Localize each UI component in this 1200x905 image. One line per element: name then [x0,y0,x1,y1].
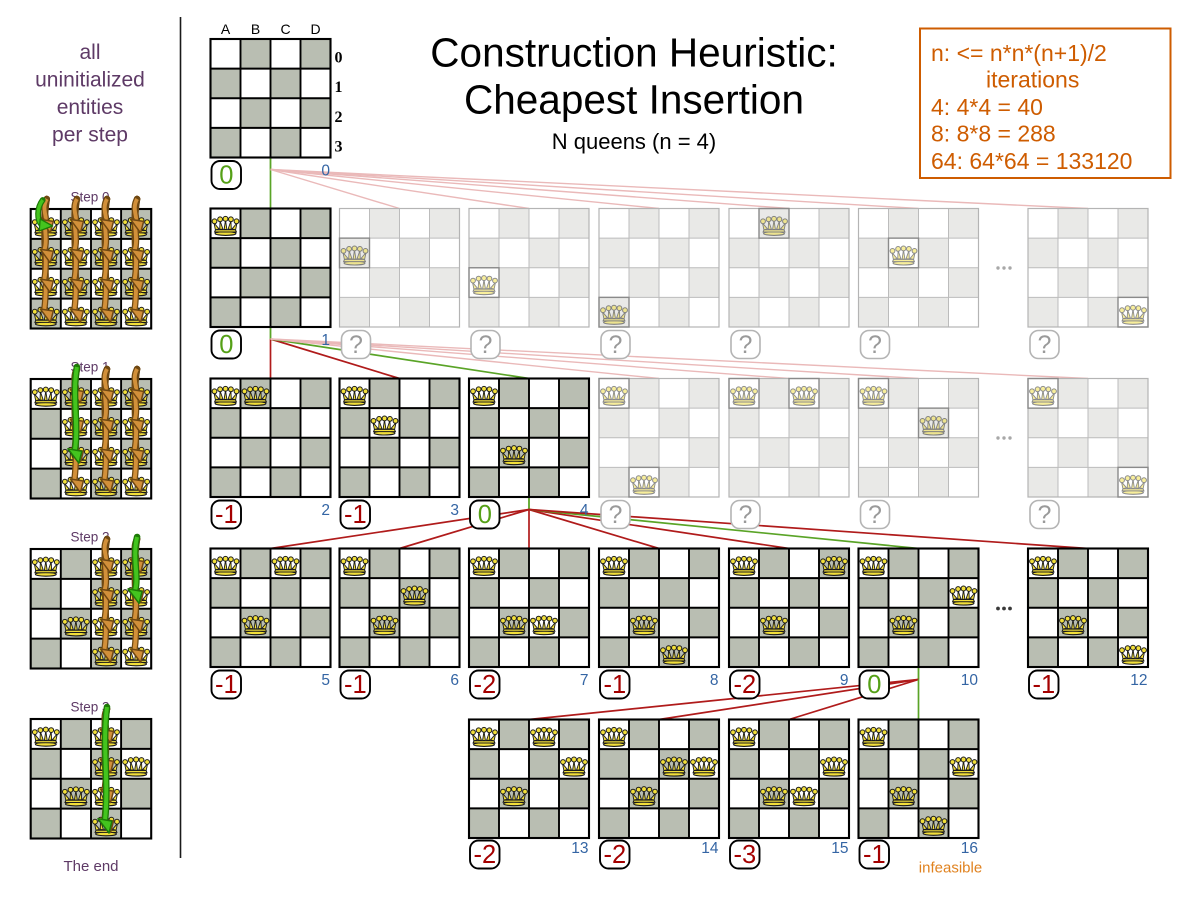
svg-text:4: 4 [580,502,589,519]
svg-text:?: ? [1038,331,1052,359]
svg-text:8: 8 [710,672,719,689]
svg-text:6: 6 [450,672,459,689]
svg-text:D: D [310,21,320,37]
svg-text:-1: -1 [863,841,886,869]
svg-text:-1: -1 [344,501,367,529]
svg-text:3: 3 [335,138,343,155]
svg-text:-1: -1 [215,501,238,529]
svg-text:64: 64*64 = 133120: 64: 64*64 = 133120 [931,148,1132,174]
svg-text:?: ? [1038,501,1052,529]
svg-text:Cheapest Insertion: Cheapest Insertion [464,77,804,123]
svg-text:-1: -1 [215,671,238,699]
svg-text:14: 14 [701,840,719,857]
svg-text:7: 7 [580,672,589,689]
svg-text:8: 8*8 = 288: 8: 8*8 = 288 [931,121,1056,147]
svg-text:?: ? [868,331,882,359]
svg-text:0: 0 [321,163,330,180]
svg-text:?: ? [349,331,363,359]
svg-text:?: ? [739,331,753,359]
svg-text:0: 0 [478,501,492,529]
svg-text:2: 2 [321,502,330,519]
svg-text:0: 0 [867,671,881,699]
svg-text:0: 0 [219,161,233,189]
svg-text:The end: The end [63,858,118,875]
svg-text:Construction Heuristic:: Construction Heuristic: [430,30,837,76]
svg-text:per step: per step [52,124,128,147]
svg-text:infeasible: infeasible [919,860,982,877]
svg-text:1: 1 [335,79,343,96]
svg-text:5: 5 [321,672,330,689]
svg-text:-2: -2 [603,841,626,869]
svg-text:?: ? [479,331,493,359]
svg-text:3: 3 [450,502,459,519]
svg-text:-3: -3 [733,841,756,869]
svg-text:-2: -2 [473,671,496,699]
svg-text:C: C [280,21,290,37]
svg-text:4: 4*4 = 40: 4: 4*4 = 40 [931,94,1043,120]
svg-text:entities: entities [57,96,124,119]
svg-text:13: 13 [571,840,588,857]
svg-text:A: A [221,21,231,37]
svg-text:9: 9 [840,672,849,689]
svg-text:15: 15 [831,840,848,857]
svg-text:0: 0 [335,50,343,67]
svg-text:-2: -2 [473,841,496,869]
svg-text:uninitialized: uninitialized [35,69,145,92]
svg-text:all: all [79,41,100,64]
svg-text:-1: -1 [344,671,367,699]
svg-text:1: 1 [321,332,330,349]
svg-text:2: 2 [335,109,343,126]
svg-text:N queens (n = 4): N queens (n = 4) [552,129,716,154]
svg-text:16: 16 [961,840,978,857]
svg-text:-1: -1 [603,671,626,699]
svg-text:10: 10 [961,672,979,689]
svg-text:iterations: iterations [986,67,1079,93]
svg-text:n: <= n*n*(n+1)/2: n: <= n*n*(n+1)/2 [931,40,1107,66]
svg-text:?: ? [609,501,623,529]
svg-text:-2: -2 [733,671,756,699]
svg-text:B: B [251,21,260,37]
svg-text:?: ? [868,501,882,529]
svg-text:?: ? [739,501,753,529]
svg-text:?: ? [609,331,623,359]
svg-text:-1: -1 [1032,671,1055,699]
svg-text:0: 0 [219,331,233,359]
svg-text:12: 12 [1130,672,1147,689]
